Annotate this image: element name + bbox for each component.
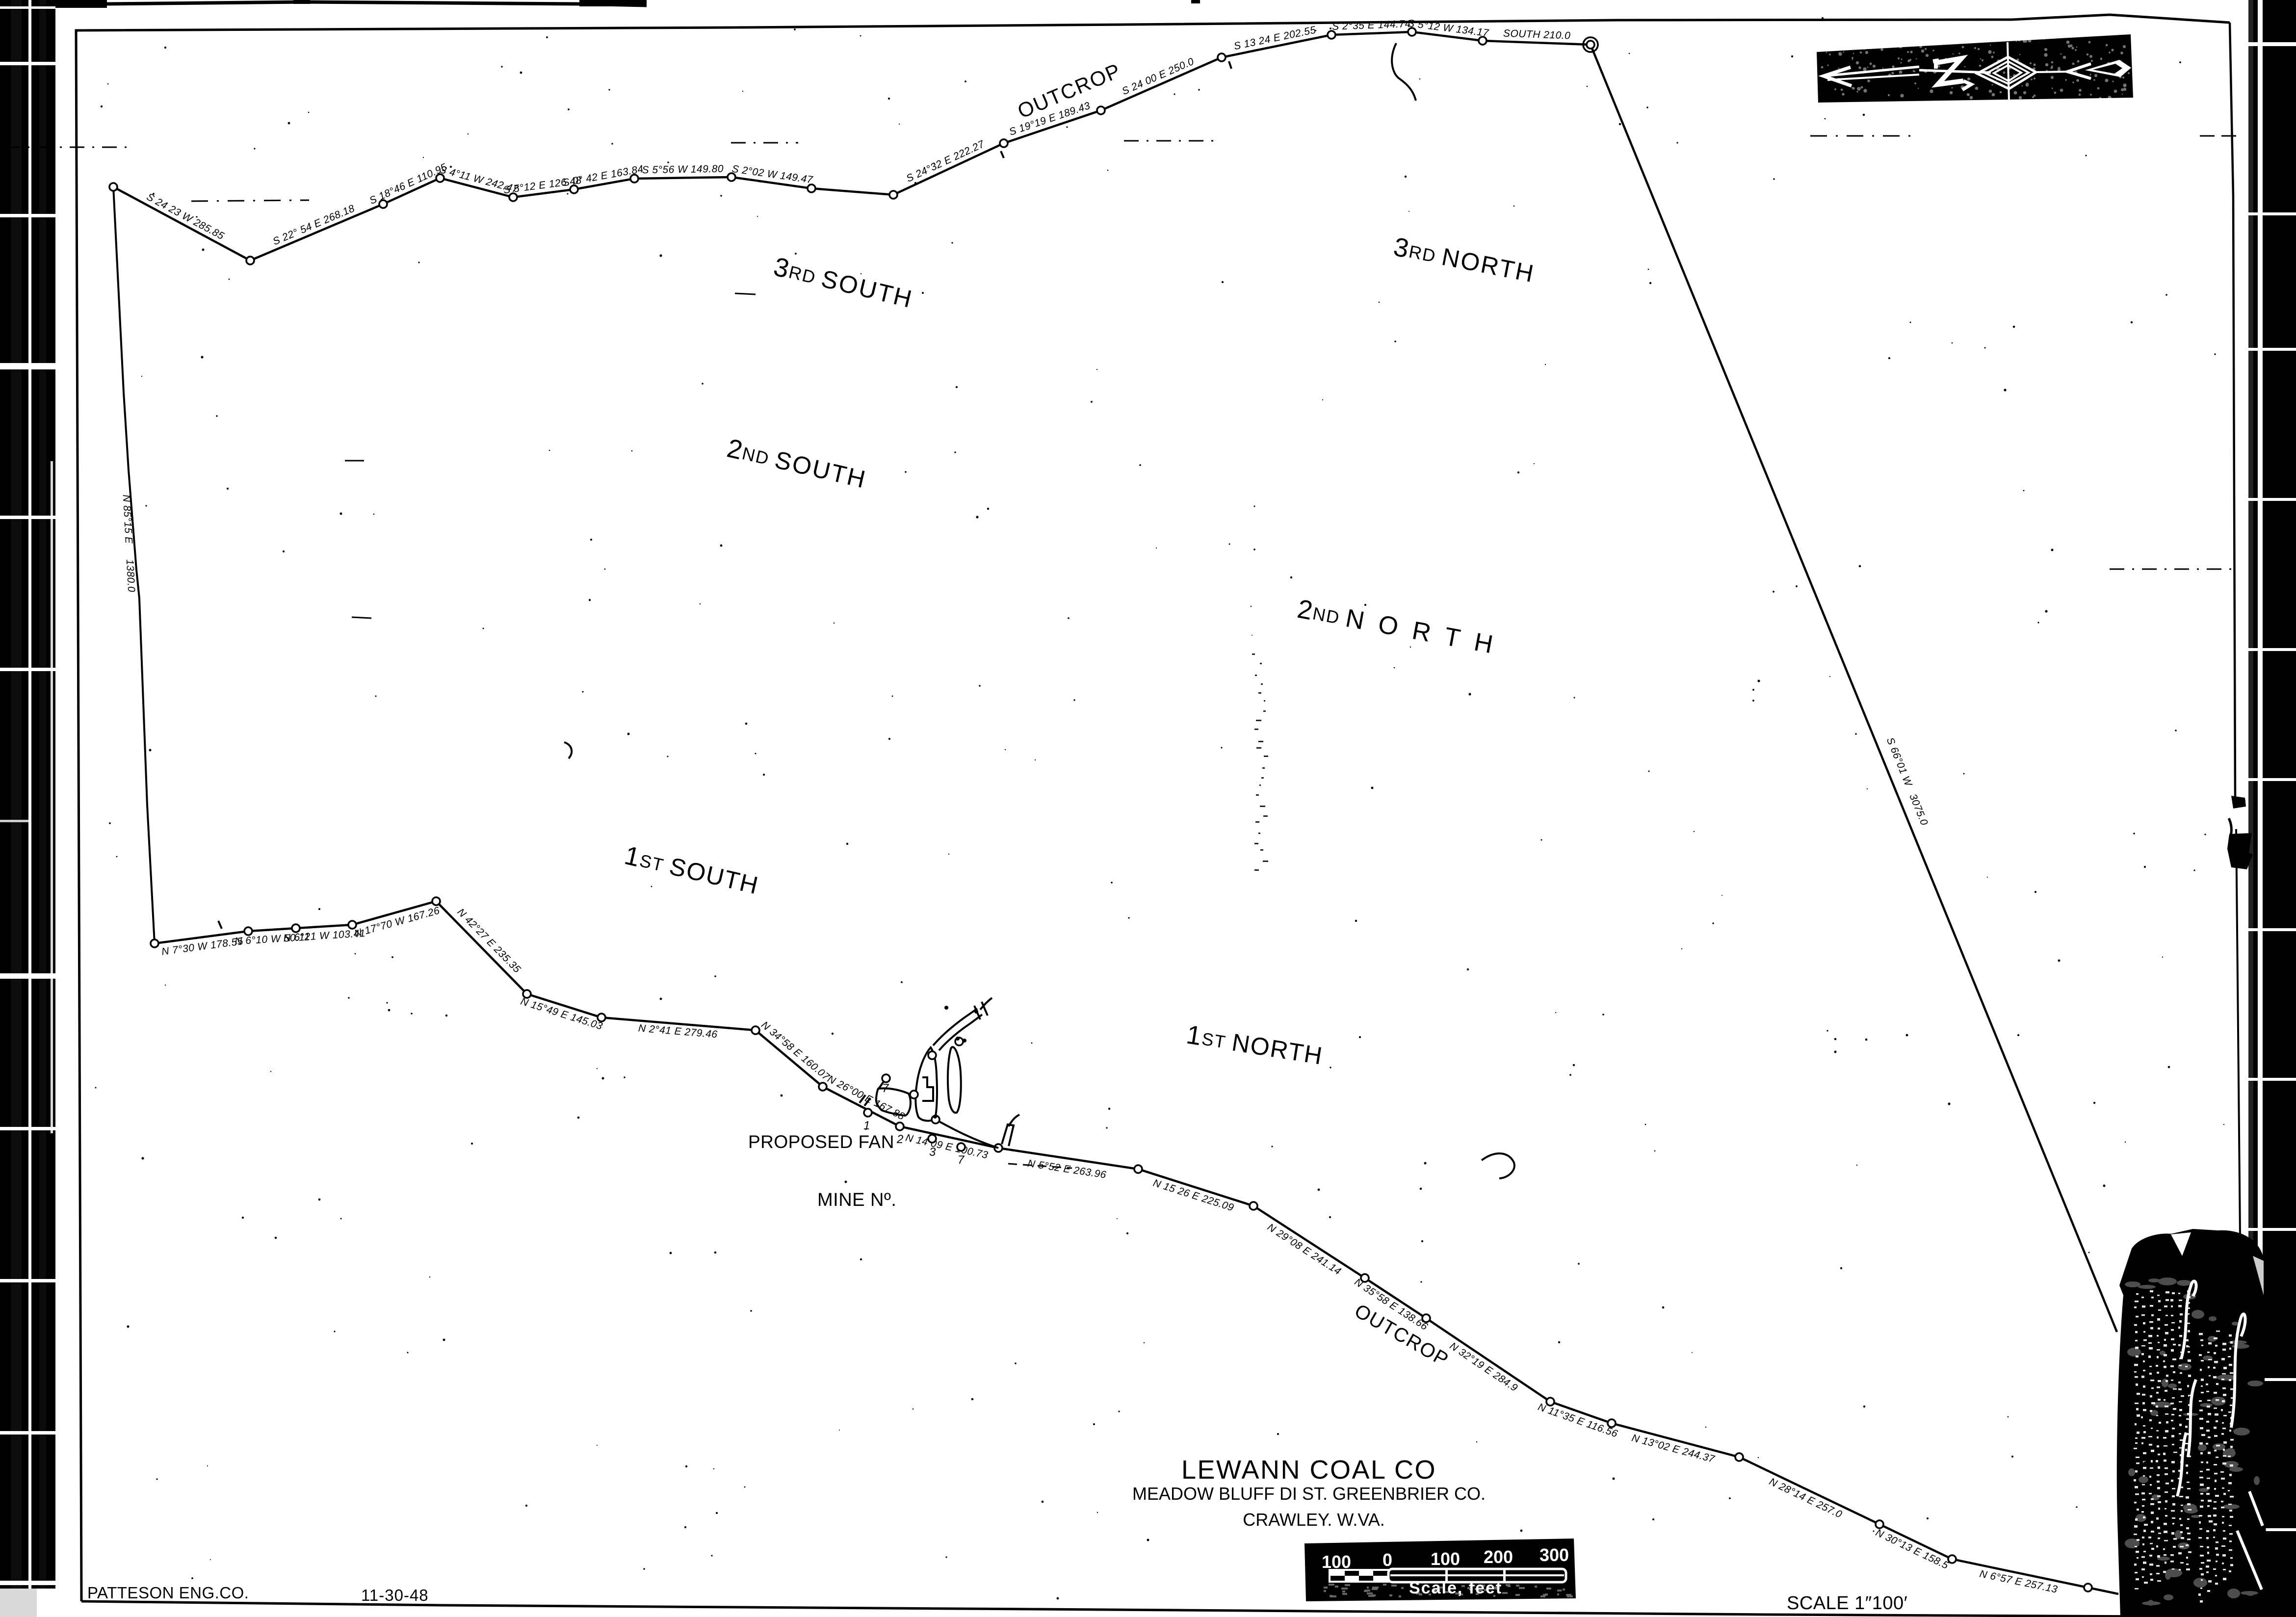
svg-text:3: 3 xyxy=(929,1146,936,1159)
svg-text:200: 200 xyxy=(1484,1547,1513,1567)
svg-text:300: 300 xyxy=(1539,1545,1569,1565)
svg-text:2: 2 xyxy=(896,1133,903,1146)
svg-text:LEWANN COAL CO: LEWANN COAL CO xyxy=(1181,1455,1436,1485)
svg-text:100: 100 xyxy=(1322,1552,1351,1572)
svg-text:CRAWLEY. W.VA.: CRAWLEY. W.VA. xyxy=(1243,1510,1384,1530)
svg-text:7: 7 xyxy=(882,1082,889,1095)
svg-text:S 5°56 W 149.80: S 5°56 W 149.80 xyxy=(642,163,724,176)
svg-text:SCALE 1″100′: SCALE 1″100′ xyxy=(1787,1593,1907,1614)
svg-text:7: 7 xyxy=(958,1153,965,1167)
svg-text:PATTESON ENG.CO.: PATTESON ENG.CO. xyxy=(87,1584,249,1602)
svg-text:11-30-48: 11-30-48 xyxy=(361,1586,429,1604)
svg-text:MINE Nº.: MINE Nº. xyxy=(817,1190,896,1210)
svg-text:100: 100 xyxy=(1431,1549,1460,1569)
svg-text:MEADOW BLUFF DI ST. GREENBRIER: MEADOW BLUFF DI ST. GREENBRIER CO. xyxy=(1132,1484,1486,1504)
svg-text:0: 0 xyxy=(1383,1550,1392,1570)
svg-text:1: 1 xyxy=(863,1119,870,1132)
svg-text:PROPOSED FAN: PROPOSED FAN xyxy=(748,1132,894,1152)
